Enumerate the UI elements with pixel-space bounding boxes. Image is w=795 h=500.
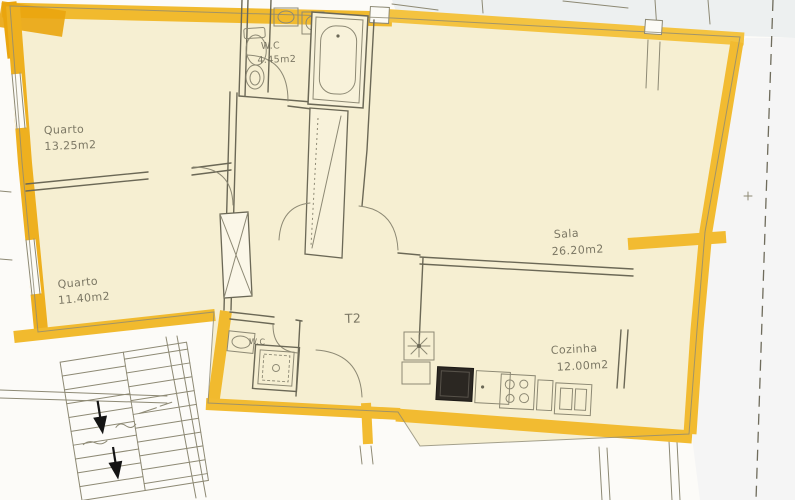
duct-shaft-icon <box>305 108 348 258</box>
closet-icon <box>220 212 252 298</box>
room-area: 26.20m2 <box>551 242 604 258</box>
room-name: Sala <box>553 227 579 241</box>
room-name: Cozinha <box>550 342 597 357</box>
room-area: 12.00m2 <box>556 358 609 374</box>
apartment-floor <box>10 6 740 446</box>
floor-plan-scan: Quarto 13.25m2 Quarto 11.40m2 Sala 26.20… <box>0 0 795 500</box>
stair-arrow-icon <box>91 400 110 436</box>
room-name: W.C <box>261 40 281 52</box>
floor-plan-canvas: Quarto 13.25m2 Quarto 11.40m2 Sala 26.20… <box>0 0 795 500</box>
room-label-wc-service: W.C <box>249 337 266 347</box>
stove-icon <box>436 367 474 402</box>
room-name: W.C <box>249 337 266 347</box>
handwritten-scribble <box>138 402 173 413</box>
staircase <box>60 342 208 500</box>
room-area: 4.45m2 <box>257 54 296 66</box>
room-name: Quarto <box>44 123 85 137</box>
apartment: Quarto 13.25m2 Quarto 11.40m2 Sala 26.20… <box>0 0 744 446</box>
room-area: 13.25m2 <box>44 138 96 153</box>
bathtub-icon <box>308 12 368 108</box>
unit-type-label: T2 <box>344 310 362 326</box>
